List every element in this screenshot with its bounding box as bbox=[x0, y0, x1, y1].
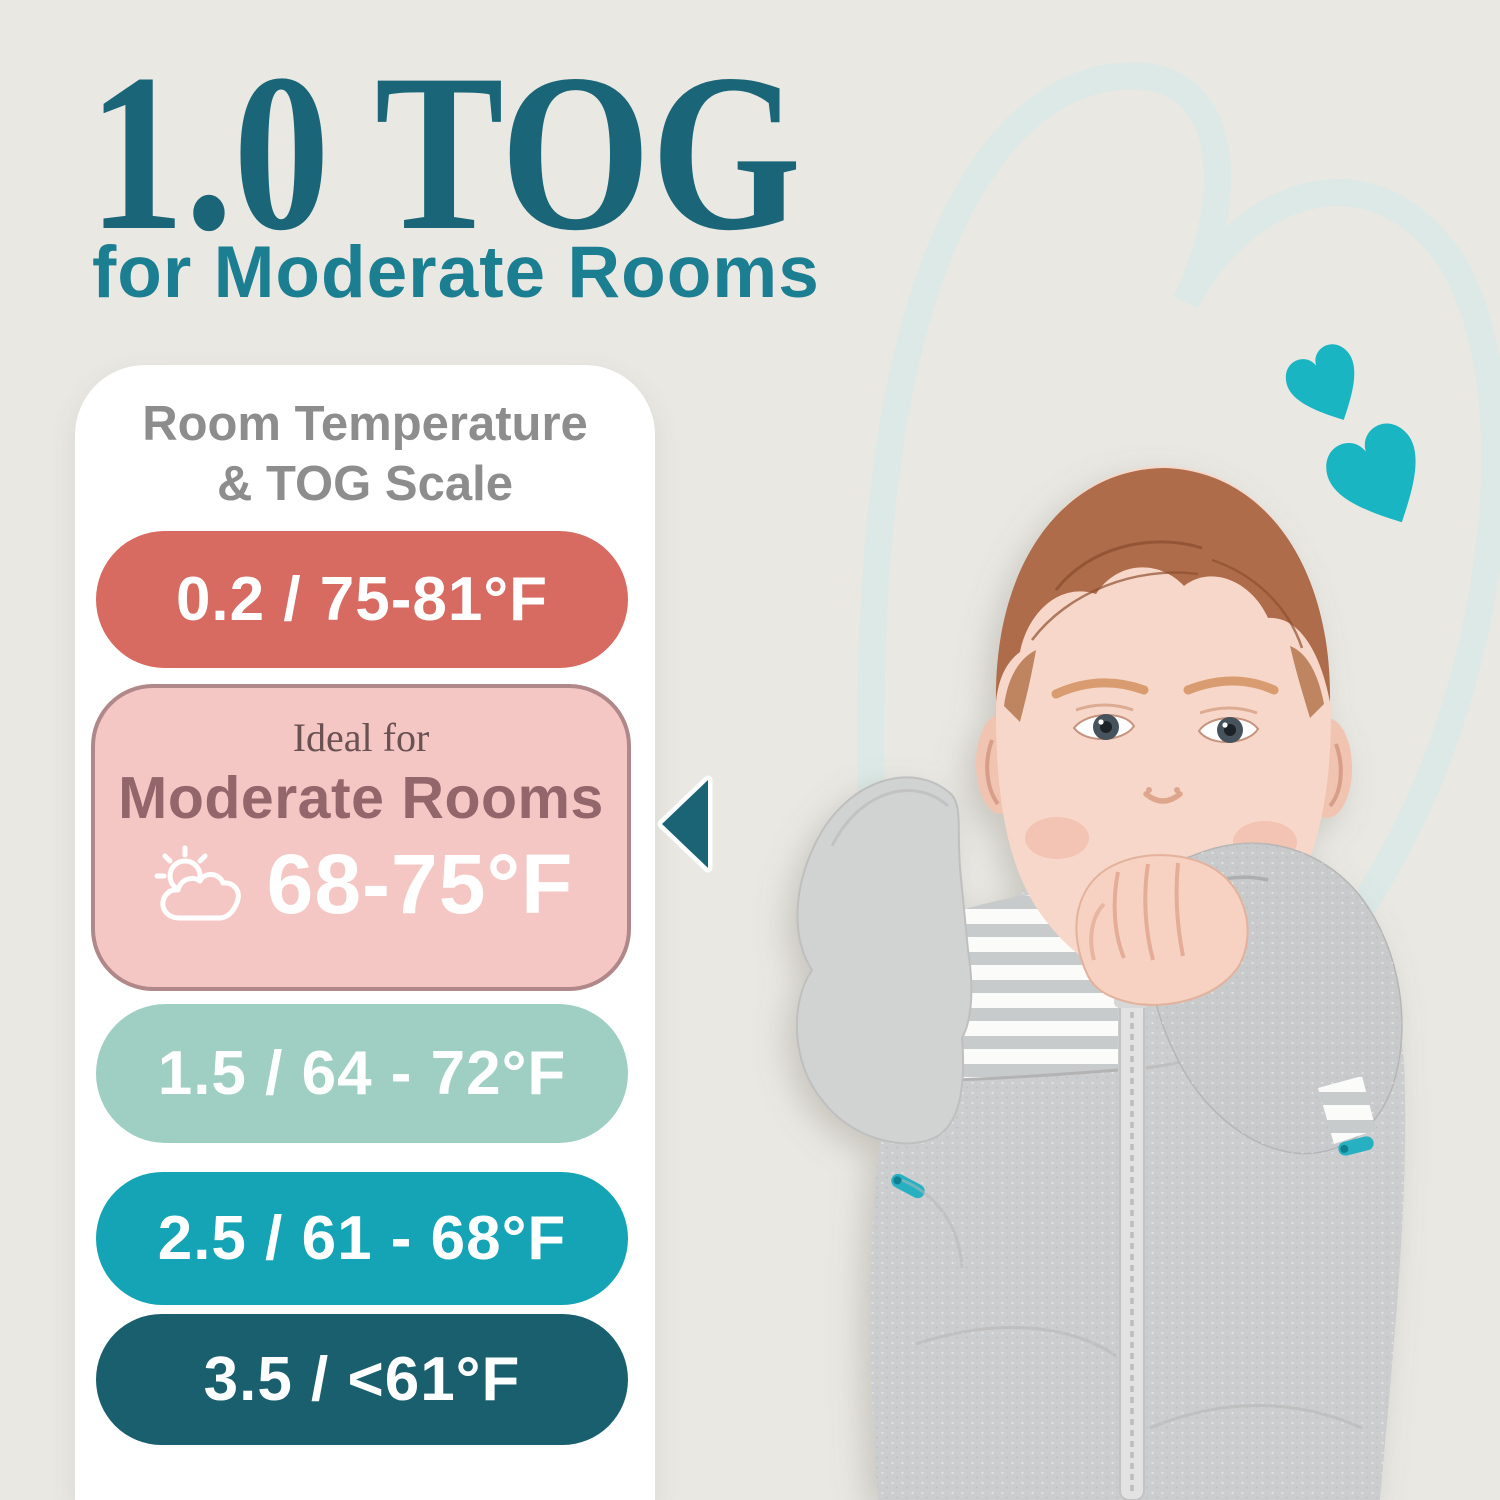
tog-row-1-5: 1.5 / 64 - 72°F bbox=[96, 1004, 628, 1143]
tog-row-3-5: 3.5 / <61°F bbox=[96, 1314, 628, 1445]
tog-row-0-2: 0.2 / 75-81°F bbox=[96, 531, 628, 668]
decor-heart-outline-icon bbox=[871, 76, 1495, 1402]
page-subtitle: for Moderate Rooms bbox=[92, 236, 820, 309]
zipper bbox=[1120, 1000, 1144, 1500]
swaddle-wing bbox=[797, 777, 972, 1143]
room-name-label: Moderate Rooms bbox=[95, 768, 627, 830]
swaddle-striped-patch bbox=[1252, 872, 1350, 944]
selection-pointer-icon bbox=[652, 772, 724, 884]
tog-row-label: 2.5 / 61 - 68°F bbox=[158, 1203, 567, 1274]
tog-row-2-5: 2.5 / 61 - 68°F bbox=[96, 1172, 628, 1305]
cheek-blush bbox=[1233, 821, 1297, 863]
tog-row-label: 0.2 / 75-81°F bbox=[176, 564, 548, 635]
sun-behind-cloud-icon bbox=[149, 842, 249, 926]
baby-fist bbox=[1076, 855, 1247, 1005]
infographic-root: 1.0 TOG for Moderate Rooms Room Temperat… bbox=[0, 0, 1500, 1500]
tog-row-ideal: Ideal for Moderate Rooms bbox=[91, 684, 631, 991]
baby-eye-left bbox=[1074, 705, 1134, 740]
sleeve-texture bbox=[1148, 843, 1402, 1153]
card-heading: Room Temperature & TOG Scale bbox=[75, 395, 655, 515]
zipper-pull-right-icon bbox=[1337, 1135, 1375, 1157]
wing-seam bbox=[832, 791, 948, 846]
room-temp-range: 68-75°F bbox=[267, 842, 574, 926]
baby-hair bbox=[996, 468, 1330, 702]
swaddle-striped-patch-right bbox=[1318, 1076, 1376, 1144]
baby-eye-right bbox=[1199, 708, 1258, 743]
baby-ear-left bbox=[976, 714, 1026, 814]
temp-row: 68-75°F bbox=[95, 842, 627, 926]
card-heading-line2: & TOG Scale bbox=[75, 455, 655, 515]
seam-line bbox=[1146, 992, 1340, 1068]
baby-ear-right bbox=[1302, 718, 1352, 818]
cuff-seam bbox=[1158, 877, 1268, 906]
ideal-for-label: Ideal for bbox=[95, 716, 627, 760]
tog-row-label: 3.5 / <61°F bbox=[204, 1344, 521, 1415]
cheek-blush bbox=[1025, 817, 1089, 859]
baby-head bbox=[976, 466, 1352, 986]
swaddle-striped-bib bbox=[951, 892, 1118, 1080]
tog-row-label: 1.5 / 64 - 72°F bbox=[158, 1038, 567, 1109]
card-heading-line1: Room Temperature bbox=[75, 395, 655, 455]
tog-scale-card: Room Temperature & TOG Scale 0.2 / 75-81… bbox=[75, 365, 655, 1500]
baby-nose bbox=[1146, 794, 1180, 801]
swaddle-body bbox=[870, 886, 1405, 1500]
swaddle-sleeve bbox=[1148, 843, 1402, 1153]
zipper-pull-left-icon bbox=[889, 1171, 927, 1200]
baby-mouth bbox=[1094, 870, 1218, 962]
seam-line bbox=[953, 1070, 1118, 1080]
swaddle-texture bbox=[870, 886, 1405, 1500]
baby-face bbox=[996, 466, 1331, 986]
baby-eyebrow-left bbox=[1056, 683, 1144, 694]
tongue bbox=[1133, 923, 1187, 953]
baby-eyebrow-right bbox=[1188, 681, 1274, 690]
zipper-stop bbox=[1114, 990, 1150, 1008]
decor-hearts-icon bbox=[1279, 338, 1443, 543]
